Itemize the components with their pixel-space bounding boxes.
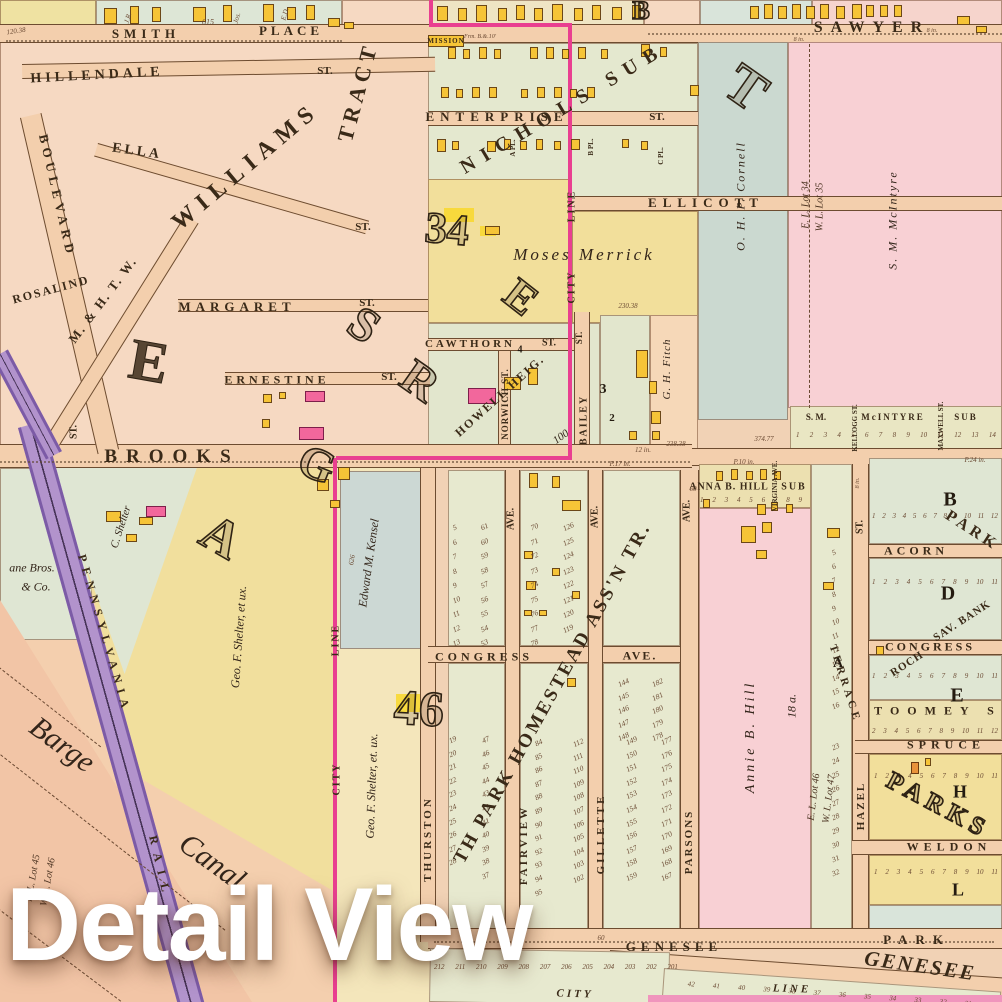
lot-number-column: 5678910111213141516 [832, 545, 840, 713]
lot-number: 11 [978, 512, 984, 520]
building-marker [746, 471, 753, 480]
label-e: E [950, 685, 963, 708]
building-marker [731, 469, 738, 480]
building-marker [437, 139, 446, 152]
label-line: LINE [331, 624, 342, 656]
building-marker [806, 6, 815, 19]
lot-number: 6 [762, 496, 766, 504]
lot-number: 2 [712, 496, 716, 504]
lot-number: 11 [991, 672, 997, 680]
lot-number: 11 [991, 868, 997, 876]
lot-number: 10 [962, 727, 969, 735]
building-marker [622, 139, 629, 148]
lot-number: 13 [972, 431, 979, 439]
lot-number: 9 [965, 868, 969, 876]
building-marker [448, 47, 456, 59]
lot-number: 5 [913, 512, 917, 520]
lot-number-row: 123456789 [700, 496, 802, 504]
label-60: 60 [598, 934, 605, 942]
building-marker [641, 141, 648, 150]
lot-number: 2 [872, 727, 876, 735]
building-marker [786, 504, 793, 513]
label-st: ST. [69, 425, 80, 439]
label-congress: CONGRESS [885, 640, 975, 655]
label-st: ST. [355, 221, 370, 233]
building-marker [279, 392, 286, 399]
lot-number: 1 [874, 772, 878, 780]
lot-number: 6 [930, 672, 934, 680]
lot-number-column: 144145146147148 [618, 676, 629, 744]
label-8-in: 8 in. [855, 478, 861, 489]
city-line-segment [336, 456, 572, 460]
lot-number: 6 [865, 431, 869, 439]
label-annie-b-hill: Annie B. Hill [743, 681, 759, 794]
label-brooks: BROOKS [104, 446, 239, 468]
label-s-m: S. M. [806, 412, 826, 422]
building-marker [306, 5, 315, 20]
label-18-a: 18 a. [785, 694, 800, 718]
label-374-77: 374.77 [754, 435, 773, 443]
label-ave: AVE. [590, 506, 601, 528]
building-marker [537, 87, 545, 98]
lot-number: 11 [991, 772, 997, 780]
building-marker [126, 534, 137, 542]
lot-number: 1 [872, 672, 876, 680]
lot-number: 7 [942, 772, 946, 780]
label-place: PLACE [259, 23, 323, 39]
lot-number: 1 [874, 868, 878, 876]
lot-number: 14 [989, 431, 996, 439]
building-marker [441, 87, 449, 98]
building-marker [762, 522, 772, 533]
building-marker [223, 5, 232, 22]
lot-number: 35 [864, 992, 872, 1000]
building-marker [530, 47, 538, 59]
building-marker [764, 4, 773, 19]
label-gillette: GILLETTE [595, 794, 607, 875]
lot-number: 207 [540, 963, 551, 971]
label-4: 4 [518, 345, 523, 356]
lot-number: 206 [561, 963, 572, 971]
city-line-segment [429, 23, 572, 27]
lot-number: 203 [625, 963, 636, 971]
lot-number-column: 112111110109108107106105104103102 [573, 736, 584, 886]
lot-number: 10 [977, 868, 984, 876]
lot-number: 6 [930, 578, 934, 586]
label-st: ST. [542, 338, 556, 349]
building-marker [139, 517, 153, 525]
lot-number-row: 1234567891011 [872, 578, 998, 586]
lot-number: 5 [920, 868, 924, 876]
building-marker [756, 550, 767, 559]
building-marker [489, 87, 497, 98]
label-2: 2 [609, 412, 615, 424]
lot-number: 1 [872, 578, 876, 586]
label-w-l-lot-35: W. L. Lot 35 [815, 183, 826, 232]
lot-number: 3 [824, 431, 828, 439]
lot-number: 34 [889, 994, 897, 1002]
building-marker [827, 528, 840, 538]
lot-number-column: 707172737475767778 [531, 520, 539, 651]
lot-number: 201 [667, 963, 678, 971]
label-p-17-in: P.17 in. [609, 460, 630, 468]
building-marker [876, 646, 884, 655]
lot-number: 4 [737, 496, 741, 504]
building-marker [651, 411, 661, 424]
lot-number: 4 [907, 672, 911, 680]
lot-number: 4 [837, 431, 841, 439]
building-marker [778, 6, 787, 19]
building-marker [649, 381, 657, 394]
lot-number: 1 [872, 512, 876, 520]
building-marker [612, 7, 622, 20]
lot-number: 3 [897, 868, 901, 876]
lot-number: 205 [582, 963, 593, 971]
label-city: CITY [332, 762, 343, 795]
label-12-in: 12 in. [635, 446, 651, 454]
label-cawthorn: CAWTHORN [425, 338, 515, 350]
building-marker [338, 467, 350, 480]
building-marker [330, 500, 340, 508]
building-marker [750, 6, 759, 19]
label-frm-b-10: Frm. B.&.10' [464, 34, 496, 40]
label-ave: AVE. [506, 508, 517, 530]
building-marker [578, 47, 586, 59]
building-marker [534, 8, 543, 21]
lot-number: 8 [940, 727, 944, 735]
label-d: D [941, 583, 955, 606]
label-moses-merrick: Moses Merrick [513, 245, 654, 265]
building-marker [521, 89, 528, 98]
label-ave: AVE. [682, 500, 693, 522]
building-marker [836, 6, 845, 19]
map-block [644, 0, 700, 26]
building-marker [485, 226, 500, 235]
lot-number: 32 [939, 998, 947, 1002]
label-e-l-lot-34: E. L. Lot 34 [801, 181, 812, 229]
building-marker [463, 49, 470, 59]
building-marker [536, 139, 543, 150]
lot-number: 5 [749, 496, 753, 504]
label-b: B [632, 0, 649, 26]
label-toomey-s: TOOMEY S [874, 704, 1002, 719]
lot-number: 12 [954, 431, 961, 439]
building-marker [437, 6, 448, 21]
label-line: LINE [773, 982, 812, 995]
label-smith: SMITH [112, 26, 180, 42]
lot-number: 2 [884, 672, 888, 680]
label-615: 615 [202, 18, 214, 27]
lot-number: 2 [882, 512, 886, 520]
lot-number: 8 [954, 772, 958, 780]
lot-number: 9 [906, 431, 910, 439]
lot-number: 9 [951, 727, 955, 735]
building-marker [760, 469, 767, 480]
lot-number-column: 182181180179178 [652, 676, 663, 744]
lot-number: 8 [893, 431, 897, 439]
lot-number-column: 848586878889909192939495 [535, 736, 543, 899]
building-marker [263, 4, 274, 22]
building-marker [880, 5, 888, 17]
lot-number: 7 [942, 868, 946, 876]
label-o-h-p-cornell: O. H. P. Cornell [734, 141, 749, 251]
lot-number: 9 [965, 578, 969, 586]
label-a-pl: A PL. [509, 139, 517, 156]
label-genesee: GENESEE [626, 939, 722, 955]
lot-number: 36 [839, 991, 847, 999]
lot-number: 11 [977, 727, 983, 735]
lot-number: 4 [907, 578, 911, 586]
label-sub: SUB [954, 412, 978, 422]
lot-number: 9 [799, 496, 803, 504]
building-marker [562, 500, 581, 511]
label-p-24-in: P.24 in. [964, 456, 985, 464]
label-60: 60 [690, 485, 697, 493]
lot-number: 1 [796, 431, 800, 439]
label-a: A [833, 656, 843, 672]
lot-number: 1 [700, 496, 704, 504]
lot-number: 148 [616, 729, 632, 746]
lot-number: 2 [810, 431, 814, 439]
lot-number: 7 [928, 727, 932, 735]
label-mission: MISSION [427, 37, 464, 45]
lot-number: 5 [906, 727, 910, 735]
lot-number: 159 [624, 868, 640, 885]
label-st: ST. [317, 65, 332, 77]
lot-number: 42 [687, 980, 695, 988]
building-marker [629, 431, 637, 440]
label-st: ST. [855, 520, 866, 534]
building-marker [146, 506, 166, 517]
label-congress: CONGRESS [435, 650, 533, 665]
label-maxwell-st: MAXWELL ST. [937, 402, 945, 451]
lot-number: 12 [991, 727, 998, 735]
map-block [869, 905, 1002, 930]
building-marker [328, 18, 340, 27]
lot-number: 7 [942, 672, 946, 680]
building-marker [262, 419, 270, 428]
building-marker [894, 5, 902, 17]
label-spruce: SPRUCE [907, 738, 985, 753]
building-marker [152, 7, 161, 22]
building-marker [976, 26, 987, 33]
building-marker [552, 568, 560, 576]
lot-number: 4 [903, 512, 907, 520]
lot-number: 40 [738, 984, 746, 992]
building-marker [472, 87, 480, 98]
building-marker [562, 49, 569, 59]
label-s-m-mcintyre: S. M. McIntyre [886, 170, 901, 270]
lot-number: 6 [917, 727, 921, 735]
label-sub: SUB [781, 482, 806, 493]
building-marker [866, 5, 874, 17]
lot-number: 9 [965, 772, 969, 780]
lot-number: 6 [931, 868, 935, 876]
lot-number-column: 5678910111213 [453, 520, 461, 651]
lot-number: 2 [885, 868, 889, 876]
lot-number-row: 1234567891011 [874, 868, 998, 876]
label-h: H [953, 782, 967, 803]
label-kellogg-st: KELLOGG ST. [851, 404, 859, 451]
building-marker [601, 49, 608, 59]
lot-number: 6 [931, 772, 935, 780]
lot-number: 8 [954, 868, 958, 876]
label-b-pl: B PL. [587, 138, 595, 155]
building-marker [636, 350, 648, 378]
building-marker [716, 471, 723, 481]
lot-number-row: 23456789101112 [872, 727, 998, 735]
lot-number: 3 [895, 578, 899, 586]
building-marker [498, 8, 507, 21]
building-marker [741, 526, 756, 543]
building-marker [263, 394, 272, 403]
map-block [869, 855, 1002, 905]
map-block [600, 315, 650, 457]
lot-number: 37 [813, 989, 821, 997]
lot-number: 202 [646, 963, 657, 971]
label-g-h-fitch: G. H. Fitch [661, 338, 673, 399]
building-marker [452, 141, 459, 150]
building-marker [792, 4, 801, 19]
label-st: ST. [574, 332, 584, 345]
label-bailey: BAILEY [579, 395, 590, 445]
label-sawyer: SAWYER [814, 19, 930, 37]
label-3: 3 [600, 382, 607, 398]
building-marker [456, 89, 463, 98]
building-marker [458, 8, 467, 21]
lot-number-row: 123456789101112 [872, 512, 998, 520]
building-marker [652, 431, 660, 440]
lot-number-column: 149150151152153154155156157158159 [626, 734, 637, 884]
label-parsons: PARSONS [683, 810, 695, 875]
building-marker [476, 5, 487, 22]
map-block [575, 196, 1002, 211]
lot-number: 10 [976, 578, 983, 586]
building-marker [494, 49, 501, 59]
lot-number: 8 [953, 672, 957, 680]
lot-number: 102 [571, 870, 587, 887]
label-8-in: 8 in. [927, 28, 938, 34]
building-marker [479, 47, 487, 59]
building-marker [546, 47, 554, 59]
label-line: LINE [567, 190, 578, 222]
label-mcintyre: McINTYRE [861, 412, 925, 422]
lot-number-column: 126125124123122121120119 [563, 520, 574, 636]
label-p-10-in: P.10 in. [733, 458, 754, 466]
lot-number: 3 [725, 496, 729, 504]
lot-number: 39 [763, 985, 771, 993]
label-c-pl: C PL. [657, 147, 665, 165]
label-virginia-ave: VIRGINIA AVE. [771, 461, 779, 511]
watermark-detail-view: Detail View [6, 866, 531, 985]
building-marker [552, 476, 560, 488]
lot-number: 9 [965, 672, 969, 680]
lot-number: 41 [713, 982, 721, 990]
building-marker [571, 139, 580, 150]
label-park: PARK [883, 932, 951, 948]
building-marker [554, 141, 561, 150]
building-marker [820, 4, 829, 19]
label-238-38: 238.38 [666, 440, 685, 448]
label-acorn: ACORN [884, 544, 948, 559]
lot-number: 11 [991, 578, 997, 586]
lot-number: 6 [923, 512, 927, 520]
building-marker [344, 22, 354, 29]
lot-number: 4 [908, 868, 912, 876]
lot-number: 10 [920, 431, 927, 439]
label-st: ST. [381, 371, 396, 383]
lot-number: 5 [920, 772, 924, 780]
building-marker [305, 391, 325, 402]
label-ernestine: ERNESTINE [224, 373, 329, 388]
building-marker [592, 5, 601, 20]
lot-number: 167 [659, 868, 675, 885]
lot-number: 3 [883, 727, 887, 735]
label-34: 34 [423, 202, 471, 257]
label-b: B [943, 489, 956, 512]
label-city: CITY [556, 987, 593, 1000]
lot-number: 204 [604, 963, 615, 971]
label-city: CITY [567, 270, 578, 303]
lot-number: 33 [914, 996, 922, 1002]
label-ane-bros: ane Bros. [9, 561, 55, 576]
building-marker [516, 5, 525, 20]
building-marker [574, 8, 583, 21]
label-anna-b-hill: ANNA B. HILL [689, 482, 769, 493]
building-marker [529, 473, 538, 488]
building-marker [104, 8, 117, 24]
label-46: 46 [393, 678, 446, 739]
lot-number-column: 177176175174173172171170169168167 [661, 734, 672, 884]
label-co: & Co. [21, 580, 50, 595]
lot-number: 7 [933, 512, 937, 520]
label-ave: AVE. [623, 649, 658, 664]
lot-number: 10 [976, 672, 983, 680]
lot-number: 178 [650, 729, 666, 746]
plat-map-canvas: 1920212223242526272847464544434241403938… [0, 0, 1002, 1002]
label-8-in: 8 in. [794, 37, 805, 43]
building-marker [852, 4, 862, 19]
lot-number: 4 [895, 727, 899, 735]
lot-number: 3 [892, 512, 896, 520]
building-marker [552, 4, 563, 21]
lot-number: 7 [879, 431, 883, 439]
map-block [869, 558, 1002, 640]
building-marker [757, 504, 766, 515]
label-hazel: HAZEL [855, 782, 867, 831]
building-marker [925, 758, 931, 766]
label-st: ST. [649, 111, 664, 123]
lot-number: 5 [918, 578, 922, 586]
lot-number: 5 [918, 672, 922, 680]
lot-number: 8 [786, 496, 790, 504]
label-margaret: MARGARET [178, 299, 295, 315]
building-marker [690, 85, 699, 96]
lot-number-column: 616059585756555453 [481, 520, 489, 651]
building-marker [957, 16, 970, 25]
label-230-38: 230.38 [618, 302, 637, 310]
lot-number: 10 [977, 772, 984, 780]
label-l: L [952, 880, 964, 901]
lot-number-row: 1234567891011121314 [796, 431, 996, 439]
lot-number: 12 [991, 512, 998, 520]
lot-number: 2 [884, 578, 888, 586]
